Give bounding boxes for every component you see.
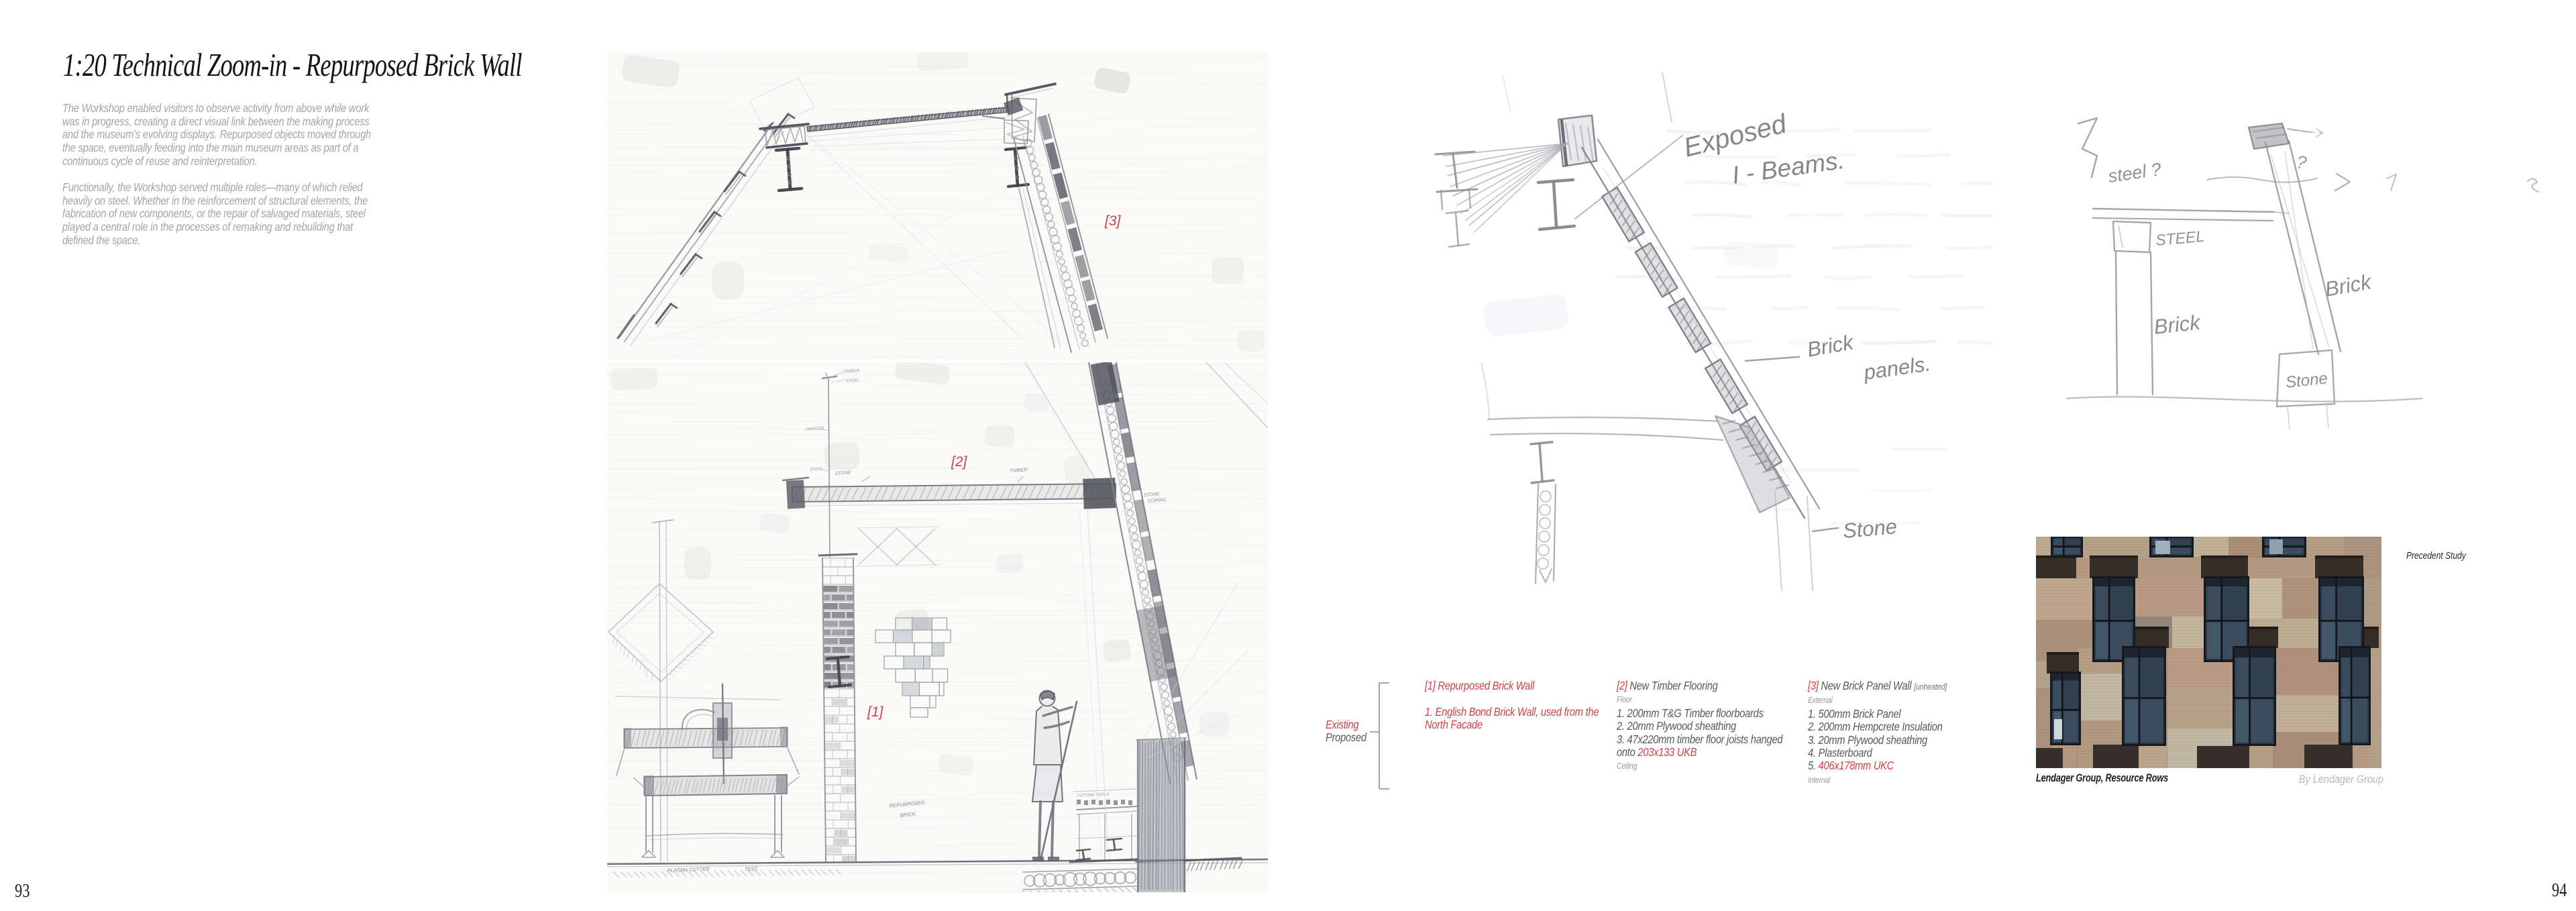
- svg-text:Brick: Brick: [2323, 270, 2373, 301]
- svg-text:STEEL: STEEL: [846, 378, 860, 384]
- svg-text:Stone: Stone: [1842, 515, 1898, 543]
- svg-text:?: ?: [2295, 152, 2308, 173]
- svg-text:panels.: panels.: [1862, 352, 1932, 384]
- svg-text:STEEL: STEEL: [2155, 227, 2205, 249]
- svg-text:[3]: [3]: [1104, 213, 1122, 229]
- svg-text:Stone: Stone: [2285, 370, 2328, 392]
- svg-text:steel ?: steel ?: [2107, 159, 2163, 186]
- svg-text:[1]: [1]: [867, 704, 884, 720]
- svg-text:TEST.: TEST.: [745, 865, 759, 872]
- svg-text:[2]: [2]: [951, 454, 968, 470]
- svg-text:STEEL: STEEL: [810, 467, 824, 472]
- svg-text:Brick: Brick: [2153, 311, 2202, 339]
- svg-text:Brick: Brick: [1805, 330, 1856, 362]
- svg-text:Exposed: Exposed: [1681, 109, 1790, 163]
